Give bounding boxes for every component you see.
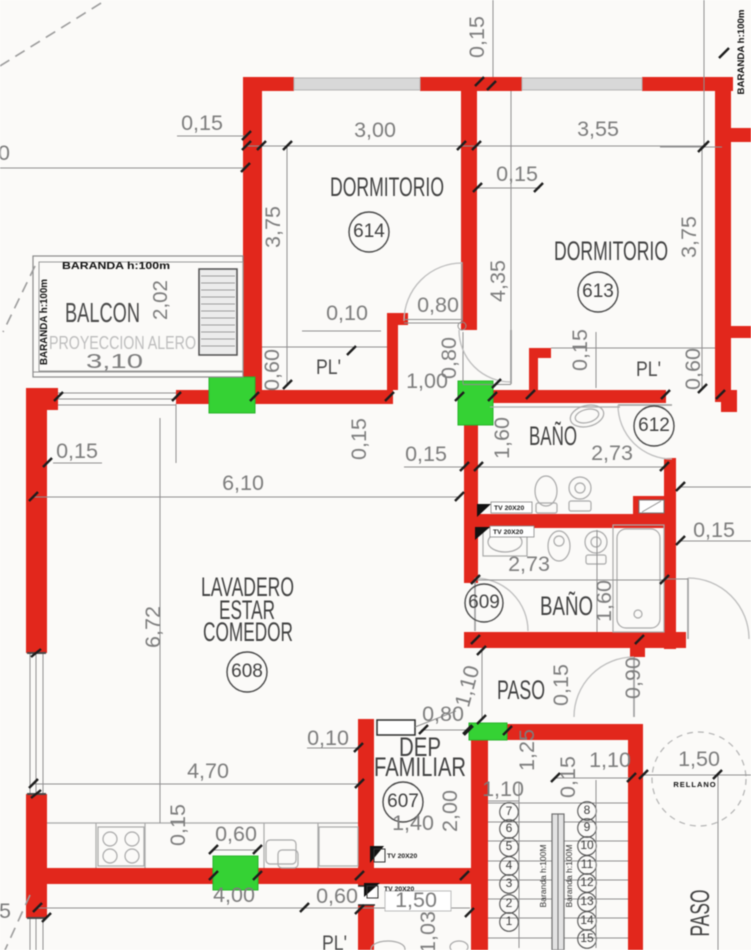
svg-text:609: 609	[468, 592, 500, 613]
svg-text:0,60: 0,60	[316, 884, 358, 908]
svg-text:0,15: 0,15	[549, 664, 573, 706]
svg-text:0,15: 0,15	[496, 162, 538, 186]
svg-text:FAMILIAR: FAMILIAR	[374, 752, 466, 782]
svg-text:0,15: 0,15	[405, 442, 447, 466]
svg-text:15: 15	[580, 931, 594, 945]
svg-text:3,00: 3,00	[354, 118, 396, 142]
svg-text:TV 20X20: TV 20X20	[493, 529, 523, 536]
svg-text:1,25: 1,25	[515, 729, 539, 771]
svg-text:1: 1	[506, 914, 513, 928]
svg-text:10: 10	[580, 838, 594, 852]
svg-text:0,15: 0,15	[556, 756, 580, 798]
svg-text:0: 0	[0, 141, 10, 165]
svg-text:13: 13	[580, 894, 594, 908]
svg-text:BALCON: BALCON	[65, 297, 140, 328]
svg-text:4,35: 4,35	[486, 260, 510, 302]
svg-text:5: 5	[506, 839, 513, 853]
svg-text:0,60: 0,60	[681, 348, 705, 390]
svg-text:1,10: 1,10	[482, 777, 524, 801]
svg-text:1,50: 1,50	[678, 747, 720, 771]
svg-text:12: 12	[580, 875, 594, 889]
svg-text:RELLANO: RELLANO	[673, 780, 716, 789]
svg-text:0,10: 0,10	[326, 301, 368, 325]
svg-text:0,60: 0,60	[215, 822, 257, 846]
svg-text:3,10: 3,10	[86, 350, 143, 373]
svg-text:2,73: 2,73	[591, 441, 633, 465]
svg-text:2: 2	[506, 896, 513, 910]
svg-text:2,02: 2,02	[149, 280, 172, 320]
svg-text:0,90: 0,90	[621, 657, 645, 699]
svg-text:6,10: 6,10	[222, 471, 264, 495]
svg-text:8: 8	[584, 803, 591, 817]
svg-text:7: 7	[506, 804, 513, 818]
svg-text:Baranda h:100M: Baranda h:100M	[564, 845, 574, 908]
svg-text:613: 613	[582, 281, 614, 302]
svg-text:PL': PL'	[322, 931, 347, 950]
svg-text:6,72: 6,72	[141, 606, 165, 648]
svg-text:0,60: 0,60	[260, 349, 284, 391]
svg-text:1,10: 1,10	[589, 748, 631, 772]
svg-text:BARANDA h:100m: BARANDA h:100m	[736, 10, 747, 95]
svg-text:5: 5	[0, 899, 11, 923]
svg-text:PASO: PASO	[497, 675, 545, 705]
svg-text:11: 11	[581, 857, 594, 871]
svg-text:3,75: 3,75	[261, 206, 285, 248]
svg-text:PASO: PASO	[685, 890, 715, 937]
svg-text:TV 20X20: TV 20X20	[494, 505, 524, 512]
svg-text:2,73: 2,73	[508, 552, 550, 576]
svg-text:BAÑO: BAÑO	[529, 421, 577, 451]
svg-text:0,15: 0,15	[56, 439, 98, 463]
svg-text:1,60: 1,60	[490, 417, 514, 459]
svg-text:BARANDA h:100m: BARANDA h:100m	[62, 261, 170, 272]
svg-text:9: 9	[584, 820, 591, 834]
svg-text:Baranda h:100M: Baranda h:100M	[538, 845, 548, 908]
svg-text:0,80: 0,80	[437, 337, 461, 379]
svg-text:0,15: 0,15	[166, 804, 190, 846]
svg-text:0,10: 0,10	[307, 726, 349, 750]
svg-text:3,55: 3,55	[577, 117, 619, 141]
svg-text:BAÑO: BAÑO	[540, 591, 593, 621]
svg-text:614: 614	[353, 221, 385, 242]
svg-text:4: 4	[506, 858, 513, 872]
svg-text:DORMITORIO: DORMITORIO	[330, 172, 444, 202]
svg-text:0,15: 0,15	[347, 418, 371, 460]
svg-text:PL': PL'	[316, 355, 341, 379]
svg-text:0,15: 0,15	[181, 111, 223, 135]
svg-text:4,70: 4,70	[187, 759, 229, 783]
svg-text:4,00: 4,00	[213, 883, 255, 907]
svg-text:0,80: 0,80	[417, 293, 459, 317]
svg-text:612: 612	[638, 415, 670, 436]
svg-text:TV 20X20: TV 20X20	[384, 886, 414, 893]
svg-text:1,03: 1,03	[416, 911, 440, 950]
svg-text:3,75: 3,75	[677, 216, 701, 258]
svg-text:14: 14	[580, 913, 594, 927]
svg-text:1,60: 1,60	[592, 580, 616, 622]
svg-text:2,00: 2,00	[438, 790, 462, 832]
svg-text:PL': PL'	[636, 357, 661, 381]
svg-text:COMEDOR: COMEDOR	[203, 617, 293, 647]
svg-text:608: 608	[231, 661, 263, 682]
svg-text:1,40: 1,40	[392, 811, 434, 835]
svg-text:6: 6	[506, 821, 513, 835]
svg-text:0,15: 0,15	[693, 518, 735, 542]
svg-text:0,15: 0,15	[465, 16, 489, 58]
svg-text:DORMITORIO: DORMITORIO	[554, 236, 668, 266]
svg-text:TV 20X20: TV 20X20	[387, 853, 417, 860]
svg-text:0,15: 0,15	[568, 329, 592, 371]
svg-text:607: 607	[387, 791, 419, 812]
svg-text:3: 3	[506, 876, 513, 890]
